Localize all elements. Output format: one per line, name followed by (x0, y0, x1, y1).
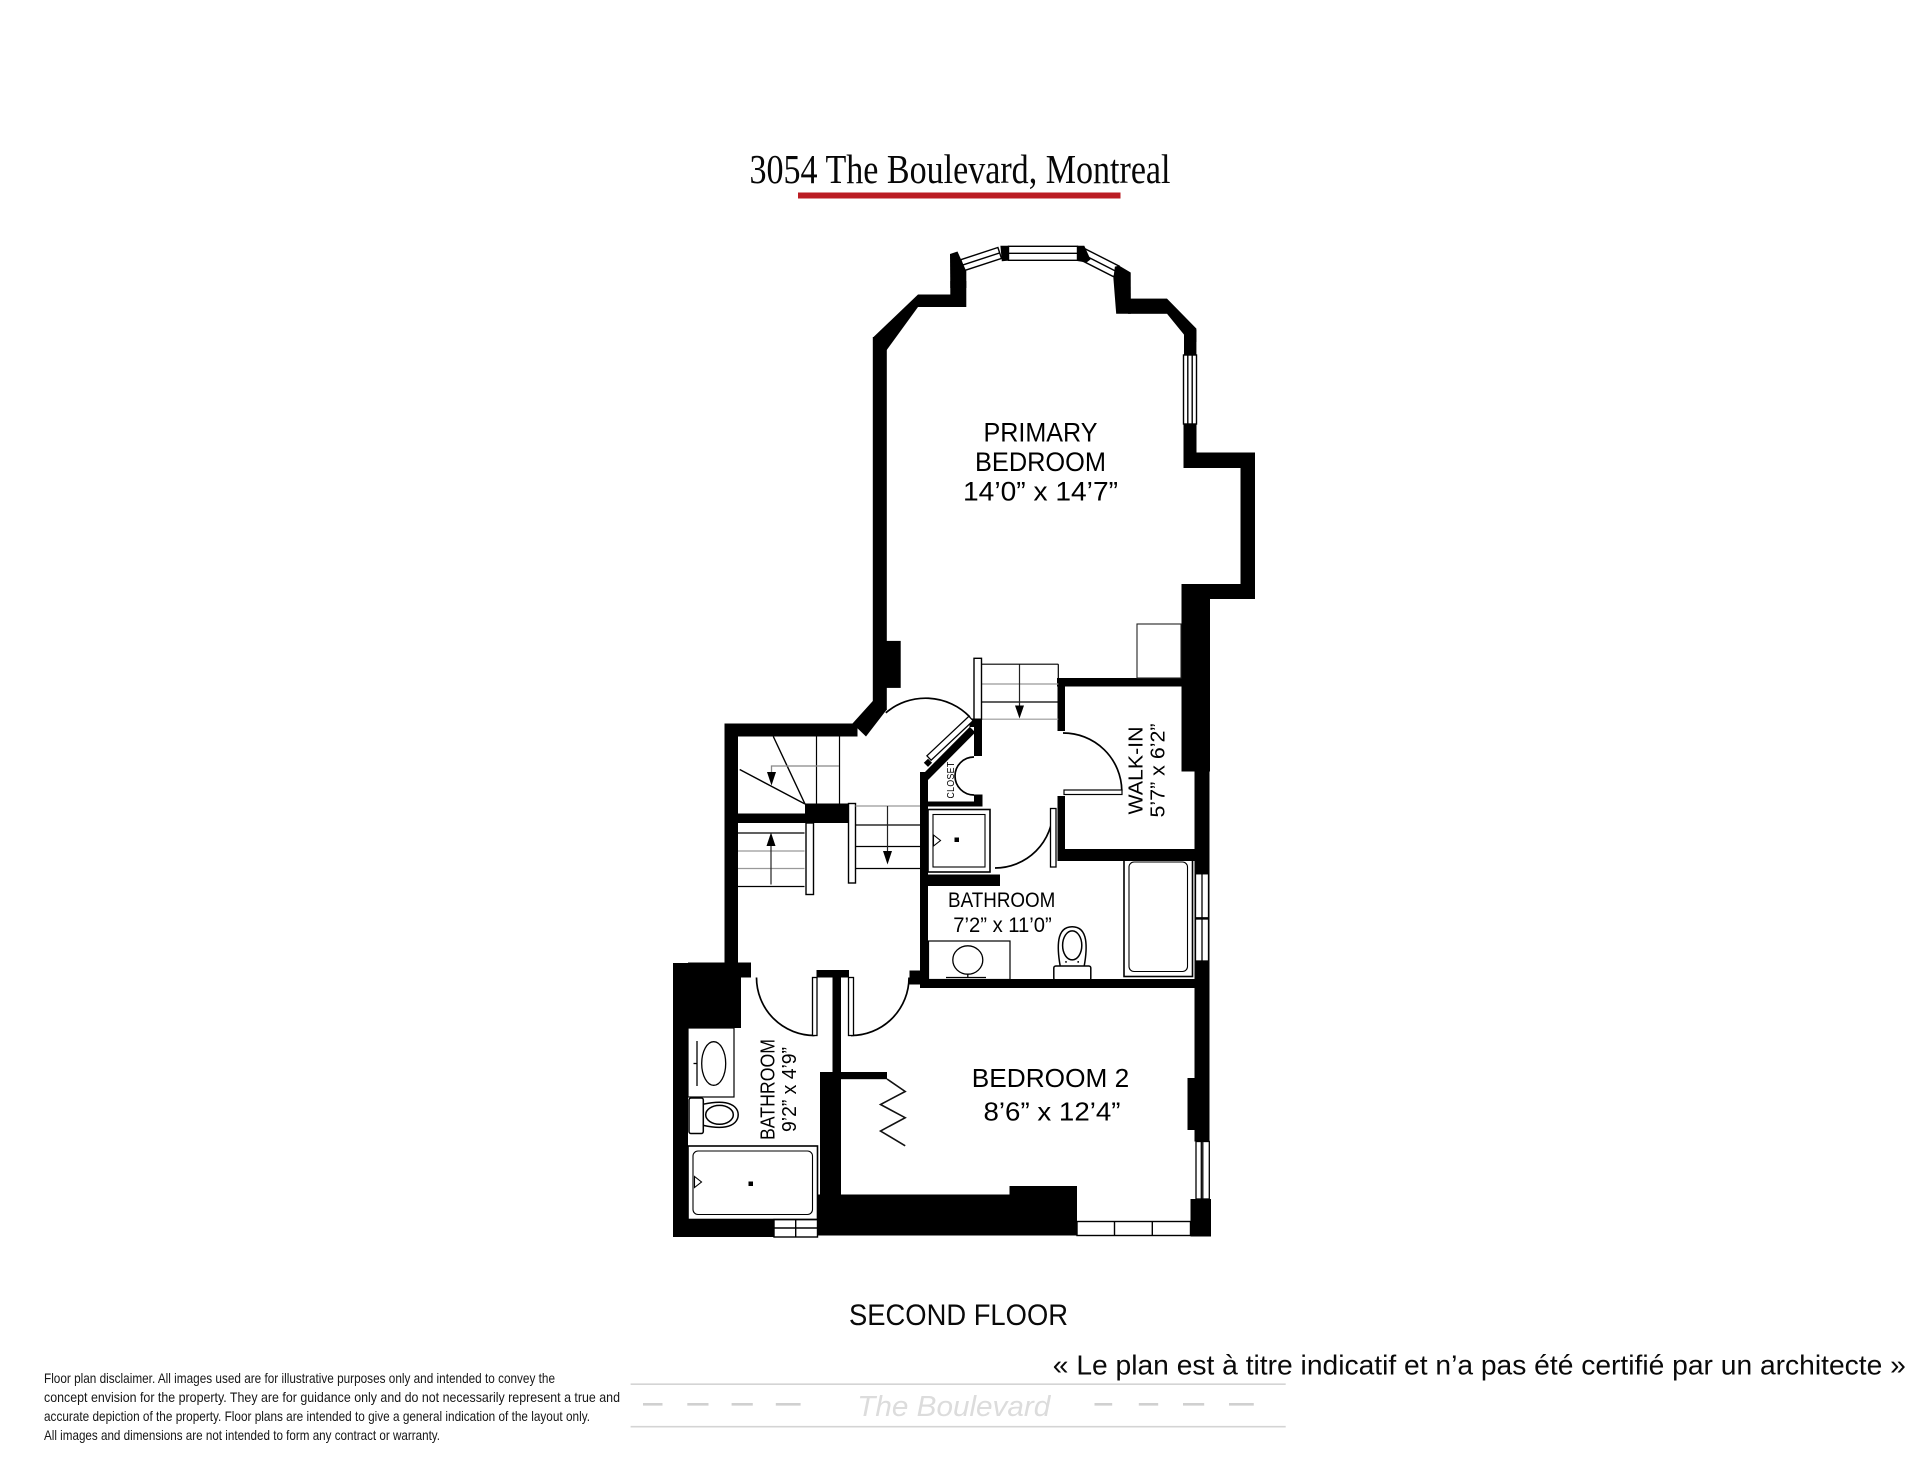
svg-text:8’6” x 12’4”: 8’6” x 12’4” (984, 1097, 1121, 1127)
svg-text:9’2” x 4’9”: 9’2” x 4’9” (779, 1047, 801, 1132)
svg-text:7’2” x 11’0”: 7’2” x 11’0” (953, 914, 1052, 937)
svg-text:14’0” x 14’7”: 14’0” x 14’7” (963, 477, 1118, 507)
svg-text:BATHROOM: BATHROOM (758, 1039, 780, 1140)
svg-text:concept envision for the prope: concept envision for the property. They … (44, 1390, 620, 1405)
svg-text:WALK-IN: WALK-IN (1126, 727, 1148, 815)
svg-text:accurate depiction of the prop: accurate depiction of the property. Floo… (44, 1409, 590, 1424)
svg-text:BEDROOM: BEDROOM (975, 447, 1106, 477)
svg-text:SECOND FLOOR: SECOND FLOOR (849, 1299, 1068, 1332)
svg-text:Floor plan disclaimer. All ima: Floor plan disclaimer. All images used a… (44, 1371, 555, 1386)
svg-text:PRIMARY: PRIMARY (984, 418, 1098, 448)
svg-text:3054 The Boulevard, Montreal: 3054 The Boulevard, Montreal (750, 146, 1171, 192)
svg-text:The Boulevard: The Boulevard (857, 1391, 1051, 1423)
svg-text:CLOSET: CLOSET (945, 761, 957, 798)
svg-text:5’7” x 6’2”: 5’7” x 6’2” (1148, 724, 1170, 818)
svg-text:BEDROOM 2: BEDROOM 2 (972, 1063, 1129, 1093)
svg-text:All images and dimensions are: All images and dimensions are not intend… (44, 1428, 440, 1443)
svg-text:« Le plan est à titre indicati: « Le plan est à titre indicatif et n’a p… (1053, 1350, 1906, 1381)
svg-text:BATHROOM: BATHROOM (948, 889, 1055, 912)
